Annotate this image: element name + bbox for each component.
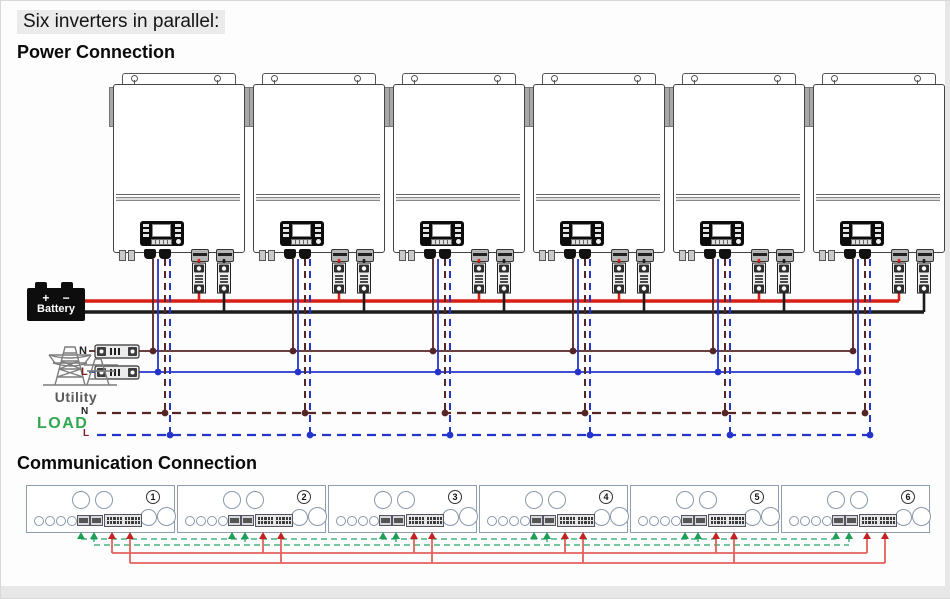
fuse-cap-pin xyxy=(362,286,366,290)
load-line-junction-dot xyxy=(867,432,874,439)
fuse-cap-pin xyxy=(642,266,646,270)
up-arrow-icon xyxy=(530,532,538,539)
load-line-junction-dot xyxy=(587,432,594,439)
aux-connector xyxy=(259,250,266,261)
fan-circle xyxy=(459,507,478,526)
current-sharing-port xyxy=(694,515,707,526)
current-sharing-port xyxy=(845,515,858,526)
port-pin xyxy=(276,521,278,524)
comm-port-block xyxy=(255,514,293,527)
fan-circle xyxy=(895,509,912,526)
battery-cable-gland xyxy=(636,249,654,262)
neutral-junction-dot xyxy=(710,348,717,355)
power-button xyxy=(316,239,321,244)
fuse-body xyxy=(333,263,346,293)
battery-cable-gland xyxy=(891,249,909,262)
port-pin xyxy=(412,521,414,524)
battery-cable-gland xyxy=(191,249,209,262)
port-pin xyxy=(113,521,115,524)
fuse-cap-pin xyxy=(477,266,481,270)
lcd-display xyxy=(152,224,171,237)
fuse-cap-pin xyxy=(782,286,786,290)
neutral-junction-dot xyxy=(290,348,297,355)
up-arrow-icon xyxy=(881,532,889,539)
fuse-cap xyxy=(474,265,484,273)
fuse-cap xyxy=(614,265,624,273)
dc-fuse xyxy=(218,263,231,293)
panel-button xyxy=(175,224,181,227)
fuse-cap-pin xyxy=(617,286,621,290)
line-junction-dot xyxy=(715,369,722,376)
keyhole-slot-icon xyxy=(774,75,781,82)
battery-cable-gland xyxy=(216,249,234,262)
port-pin xyxy=(739,517,741,520)
vent-band xyxy=(396,197,520,201)
port-pin xyxy=(433,517,435,520)
utility-line-label: L xyxy=(81,366,88,378)
panel-number-badge: 6 xyxy=(901,490,915,504)
port-pin xyxy=(271,517,273,520)
panel-button xyxy=(875,224,881,227)
fan-circle xyxy=(157,507,176,526)
lcd-display xyxy=(572,224,591,237)
port-pin xyxy=(739,521,741,524)
current-sharing-port xyxy=(392,515,405,526)
port-pin xyxy=(437,521,439,524)
fuse-cap-pin xyxy=(502,266,506,270)
fan-circle xyxy=(95,491,113,509)
port-pin xyxy=(573,521,575,524)
vent-hole xyxy=(671,516,681,526)
fuse-cap-pin xyxy=(222,266,226,270)
panel-button xyxy=(455,224,461,227)
fuse-body xyxy=(498,263,511,293)
comm-port-block xyxy=(859,514,897,527)
vent-hole xyxy=(369,516,379,526)
fuse-cap xyxy=(639,265,649,273)
port-pin xyxy=(732,521,734,524)
port-pin xyxy=(591,521,593,524)
power-connection-heading: Power Connection xyxy=(17,42,175,63)
dc-fuse xyxy=(918,263,931,293)
fuse-cap xyxy=(194,285,204,293)
utility-line-breaker xyxy=(95,366,139,379)
up-arrow-icon xyxy=(379,532,387,539)
aux-connector xyxy=(128,250,135,261)
panel-button xyxy=(595,224,601,227)
vent-hole xyxy=(811,516,821,526)
dc-fuse xyxy=(778,263,791,293)
keyhole-slot-icon xyxy=(271,75,278,82)
battery-cable-gland xyxy=(776,249,794,262)
vent-hole xyxy=(789,516,799,526)
fuse-body xyxy=(218,263,231,293)
keyhole-slot-icon xyxy=(354,75,361,82)
current-sharing-port xyxy=(543,515,556,526)
load-line-junction-dot xyxy=(447,432,454,439)
battery-cable-gland xyxy=(611,249,629,262)
panel-button xyxy=(735,229,741,232)
comm-panel: 6 xyxy=(781,485,930,533)
current-sharing-port xyxy=(832,515,845,526)
ac-cable-gland xyxy=(424,249,436,259)
fuse-cap xyxy=(779,285,789,293)
panel-button xyxy=(735,234,741,237)
keyhole-slot-icon xyxy=(831,75,838,82)
load-neutral-junction-dot xyxy=(302,410,309,417)
fuse-cap-pin xyxy=(617,266,621,270)
case-seam-line xyxy=(816,194,940,195)
port-pin xyxy=(563,521,565,524)
fuse-body xyxy=(193,263,206,293)
port-pin xyxy=(729,517,731,520)
load-line-junction-dot xyxy=(167,432,174,439)
dc-fuse xyxy=(753,263,766,293)
power-button xyxy=(176,239,181,244)
panel-button xyxy=(703,229,709,232)
current-sharing-port xyxy=(90,515,103,526)
fan-circle xyxy=(850,491,868,509)
panel-number-badge: 5 xyxy=(750,490,764,504)
current-sharing-port xyxy=(530,515,543,526)
current-sharing-port xyxy=(77,515,90,526)
breaker-end-pin xyxy=(131,350,135,354)
up-arrow-icon xyxy=(694,532,702,539)
fan-circle xyxy=(699,491,717,509)
panel-port xyxy=(447,239,452,245)
panel-button xyxy=(875,234,881,237)
panel-button xyxy=(143,224,149,227)
up-arrow-icon xyxy=(712,532,720,539)
ac-cable-gland xyxy=(564,249,576,259)
port-pin xyxy=(566,521,568,524)
panel-button xyxy=(735,224,741,227)
up-arrow-icon xyxy=(428,532,436,539)
neutral-junction-dot xyxy=(570,348,577,355)
load-neutral-junction-dot xyxy=(862,410,869,417)
port-pin xyxy=(721,521,723,524)
load-line-junction-dot xyxy=(727,432,734,439)
load-line-label: L xyxy=(83,428,89,439)
port-pin xyxy=(721,517,723,520)
port-pin xyxy=(264,517,266,520)
vent-hole xyxy=(509,516,519,526)
up-arrow-icon xyxy=(579,532,587,539)
page-edge-bottom xyxy=(1,586,950,598)
fan-circle xyxy=(827,491,845,509)
vent-band xyxy=(676,197,800,201)
port-pin xyxy=(131,517,133,520)
aux-connector xyxy=(688,250,695,261)
port-pin xyxy=(120,521,122,524)
fuse-cap xyxy=(894,265,904,273)
neutral-junction-dot xyxy=(150,348,157,355)
up-arrow-icon xyxy=(832,532,840,539)
port-pin xyxy=(107,517,109,520)
line-junction-dot xyxy=(435,369,442,376)
panel-number-badge: 1 xyxy=(146,490,160,504)
load-neutral-junction-dot xyxy=(582,410,589,417)
case-seam-line xyxy=(676,194,800,195)
battery: + − Battery xyxy=(27,288,85,321)
port-pin xyxy=(264,521,266,524)
aux-connector xyxy=(399,250,406,261)
port-pin xyxy=(125,521,127,524)
comm-port-block xyxy=(406,514,444,527)
aux-connector xyxy=(679,250,686,261)
breaker-end-pin xyxy=(100,350,104,354)
vent-hole xyxy=(56,516,66,526)
vent-band xyxy=(816,197,940,201)
port-pin xyxy=(570,521,572,524)
fuse-cap-pin xyxy=(222,286,226,290)
aux-connector xyxy=(268,250,275,261)
fuse-body xyxy=(753,263,766,293)
port-pin xyxy=(430,521,432,524)
comm-port-block xyxy=(104,514,142,527)
port-pin xyxy=(120,517,122,520)
port-pin xyxy=(560,517,562,520)
lcd-display xyxy=(432,224,451,237)
battery-cable-gland xyxy=(496,249,514,262)
vent-hole xyxy=(660,516,670,526)
up-arrow-icon xyxy=(259,532,267,539)
port-pin xyxy=(409,521,411,524)
fan-circle xyxy=(525,491,543,509)
port-pin xyxy=(732,517,734,520)
lcd-display xyxy=(852,224,871,237)
port-pin xyxy=(276,517,278,520)
port-pin xyxy=(735,517,737,520)
vent-hole xyxy=(34,516,44,526)
vent-hole xyxy=(347,516,357,526)
page-title: Six inverters in parallel: xyxy=(17,10,225,34)
current-sharing-port xyxy=(681,515,694,526)
ac-cable-gland xyxy=(144,249,156,259)
comm-panel: 1 xyxy=(26,485,175,533)
fuse-body xyxy=(358,263,371,293)
panel-button xyxy=(283,229,289,232)
keyhole-slot-icon xyxy=(691,75,698,82)
panel-button xyxy=(315,224,321,227)
battery-cable-gland xyxy=(331,249,349,262)
up-arrow-icon xyxy=(277,532,285,539)
up-arrow-icon xyxy=(845,532,853,539)
port-pin xyxy=(717,521,719,524)
fuse-cap-pin xyxy=(197,266,201,270)
ac-cable-gland xyxy=(299,249,311,259)
port-pin xyxy=(128,521,130,524)
port-pin xyxy=(286,517,288,520)
vent-hole xyxy=(196,516,206,526)
vent-hole xyxy=(45,516,55,526)
port-pin xyxy=(279,521,281,524)
case-seam-line xyxy=(396,194,520,195)
fuse-cap xyxy=(474,285,484,293)
port-pin xyxy=(883,517,885,520)
power-button xyxy=(456,239,461,244)
up-arrow-icon xyxy=(681,532,689,539)
panel-button xyxy=(703,224,709,227)
case-seam-line xyxy=(536,194,660,195)
power-button xyxy=(876,239,881,244)
vent-hole xyxy=(185,516,195,526)
comm-panel: 3 xyxy=(328,485,477,533)
port-pin xyxy=(729,521,731,524)
breaker-end xyxy=(97,347,106,356)
vent-hole xyxy=(487,516,497,526)
load-neutral-junction-dot xyxy=(442,410,449,417)
dc-fuse xyxy=(333,263,346,293)
port-pin xyxy=(560,521,562,524)
ac-cable-gland xyxy=(579,249,591,259)
battery-cable-gland xyxy=(751,249,769,262)
breaker-end xyxy=(128,347,137,356)
port-pin xyxy=(409,517,411,520)
port-pin xyxy=(128,517,130,520)
fuse-cap xyxy=(499,265,509,273)
fan-circle xyxy=(140,509,157,526)
battery-cable-gland xyxy=(916,249,934,262)
battery-cable-gland xyxy=(471,249,489,262)
port-pin xyxy=(415,517,417,520)
keyhole-slot-icon xyxy=(494,75,501,82)
fuse-body xyxy=(918,263,931,293)
vent-hole xyxy=(800,516,810,526)
vent-hole xyxy=(649,516,659,526)
fuse-cap-pin xyxy=(502,286,506,290)
line-junction-dot xyxy=(855,369,862,376)
port-pin xyxy=(437,517,439,520)
line-junction-dot xyxy=(295,369,302,376)
port-pin xyxy=(578,517,580,520)
power-button xyxy=(596,239,601,244)
port-pin xyxy=(427,521,429,524)
battery-cable-gland xyxy=(356,249,374,262)
vent-hole xyxy=(822,516,832,526)
fuse-cap xyxy=(334,285,344,293)
port-pin xyxy=(113,517,115,520)
line-junction-dot xyxy=(155,369,162,376)
panel-number-badge: 2 xyxy=(297,490,311,504)
keyhole-slot-icon xyxy=(551,75,558,82)
port-pin xyxy=(419,521,421,524)
aux-connector xyxy=(548,250,555,261)
fan-circle xyxy=(912,507,931,526)
dc-fuse xyxy=(638,263,651,293)
port-pin xyxy=(588,521,590,524)
port-pin xyxy=(286,521,288,524)
port-pin xyxy=(271,521,273,524)
panel-button xyxy=(875,229,881,232)
fuse-cap xyxy=(919,265,929,273)
port-pin xyxy=(880,517,882,520)
panel-button xyxy=(175,234,181,237)
port-pin xyxy=(440,517,442,520)
vent-hole xyxy=(207,516,217,526)
dc-fuse xyxy=(613,263,626,293)
up-arrow-icon xyxy=(730,532,738,539)
port-pin xyxy=(433,521,435,524)
port-pin xyxy=(279,517,281,520)
port-pin xyxy=(742,521,744,524)
keyhole-slot-icon xyxy=(411,75,418,82)
fan-circle xyxy=(761,507,780,526)
port-pin xyxy=(865,521,867,524)
fuse-cap-pin xyxy=(642,286,646,290)
keyhole-slot-icon xyxy=(131,75,138,82)
fan-circle xyxy=(374,491,392,509)
fuse-cap xyxy=(779,265,789,273)
fuse-cap-pin xyxy=(922,266,926,270)
fuse-cap-pin xyxy=(922,286,926,290)
port-pin xyxy=(289,521,291,524)
dc-fuse xyxy=(498,263,511,293)
keyhole-slot-icon xyxy=(214,75,221,82)
dc-fuse xyxy=(358,263,371,293)
port-pin xyxy=(419,517,421,520)
fuse-cap-pin xyxy=(362,266,366,270)
panel-button xyxy=(563,224,569,227)
aux-connector xyxy=(828,250,835,261)
port-pin xyxy=(893,517,895,520)
fuse-body xyxy=(473,263,486,293)
fan-circle xyxy=(676,491,694,509)
port-pin xyxy=(422,521,424,524)
comm-panel: 2 xyxy=(177,485,326,533)
fuse-body xyxy=(893,263,906,293)
panel-button xyxy=(283,224,289,227)
panel-button xyxy=(595,234,601,237)
port-pin xyxy=(868,517,870,520)
port-pin xyxy=(890,517,892,520)
up-arrow-icon xyxy=(108,532,116,539)
up-arrow-icon xyxy=(77,532,85,539)
panel-button xyxy=(423,224,429,227)
port-pin xyxy=(584,521,586,524)
fuse-body xyxy=(613,263,626,293)
port-pin xyxy=(714,517,716,520)
panel-button xyxy=(175,229,181,232)
panel-number-badge: 3 xyxy=(448,490,462,504)
current-sharing-port xyxy=(241,515,254,526)
port-pin xyxy=(581,517,583,520)
comm-port-block xyxy=(708,514,746,527)
panel-button xyxy=(843,234,849,237)
ac-cable-gland xyxy=(704,249,716,259)
fan-circle xyxy=(308,507,327,526)
port-pin xyxy=(440,521,442,524)
panel-button xyxy=(843,224,849,227)
port-pin xyxy=(724,521,726,524)
fan-circle xyxy=(397,491,415,509)
port-pin xyxy=(584,517,586,520)
port-pin xyxy=(735,521,737,524)
utility-neutral-label: N xyxy=(79,345,87,357)
fuse-cap-pin xyxy=(897,286,901,290)
fan-circle xyxy=(246,491,264,509)
port-pin xyxy=(865,517,867,520)
fuse-cap-pin xyxy=(477,286,481,290)
up-arrow-icon xyxy=(561,532,569,539)
comm-panel: 5 xyxy=(630,485,779,533)
dc-fuse xyxy=(473,263,486,293)
port-pin xyxy=(591,517,593,520)
load-neutral-junction-dot xyxy=(722,410,729,417)
port-pin xyxy=(138,517,140,520)
port-pin xyxy=(724,517,726,520)
breaker-body xyxy=(95,345,139,358)
